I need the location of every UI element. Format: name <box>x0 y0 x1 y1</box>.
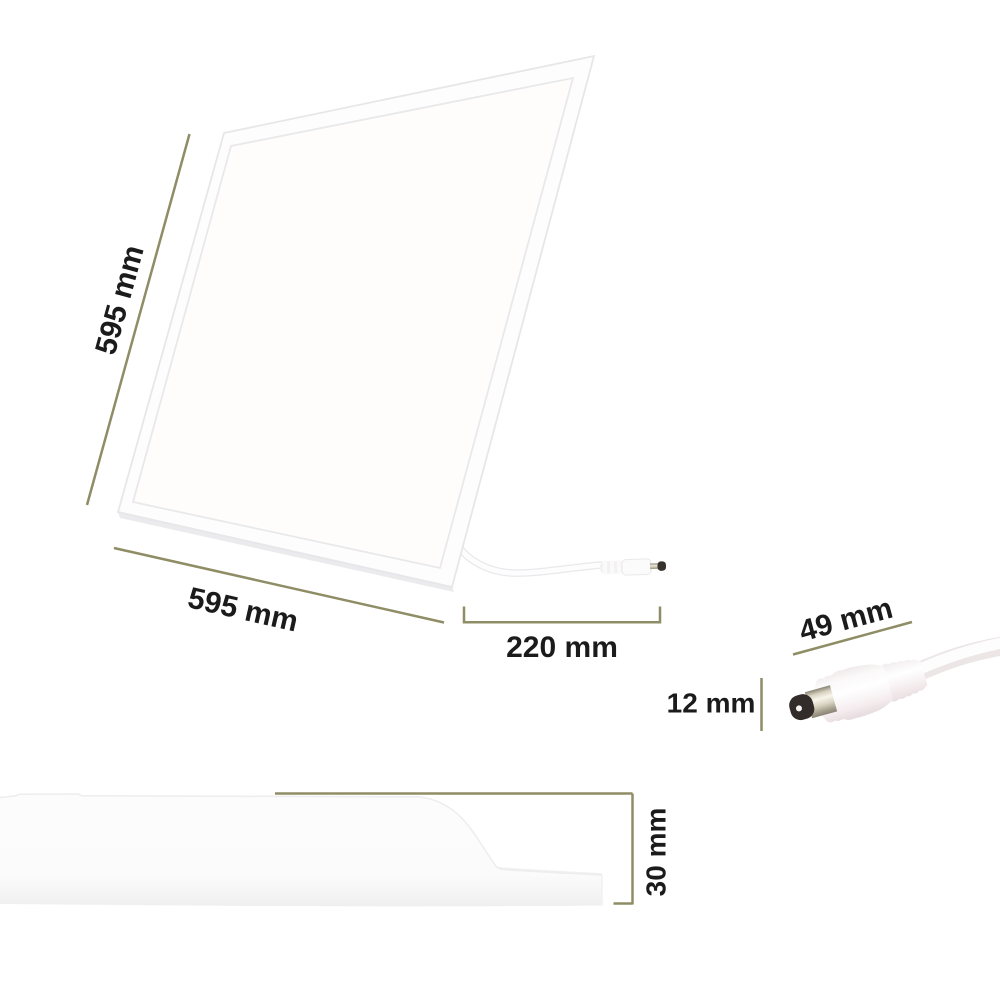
svg-text:220 mm: 220 mm <box>506 631 618 664</box>
svg-text:30 mm: 30 mm <box>641 808 672 897</box>
svg-text:12 mm: 12 mm <box>667 688 756 719</box>
